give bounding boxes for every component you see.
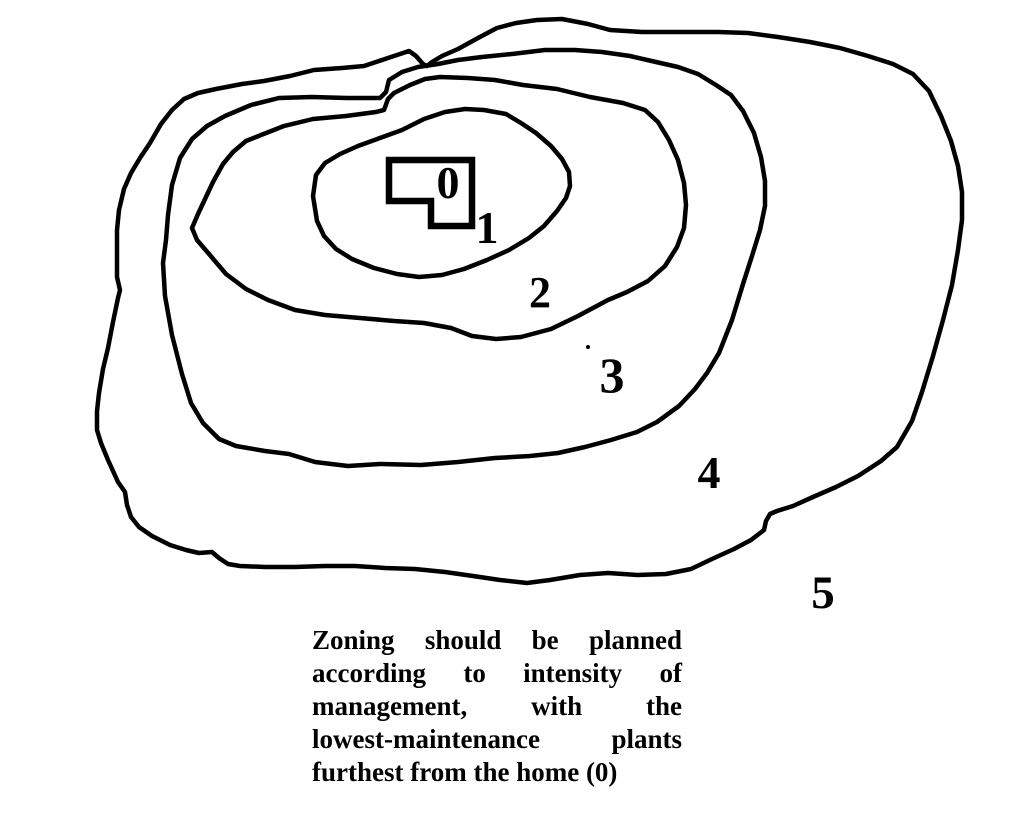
zone-label-1: 1 bbox=[476, 202, 499, 253]
zone-label-3: 3 bbox=[600, 347, 625, 403]
caption-line-3: management, with the bbox=[312, 690, 682, 723]
house-outline bbox=[389, 160, 472, 226]
zone-label-2: 2 bbox=[529, 268, 551, 317]
caption-line-2: according to intensity of bbox=[312, 657, 682, 690]
zone-label-5: 5 bbox=[811, 567, 835, 619]
caption-line-1: Zoning should be planned bbox=[312, 624, 682, 657]
caption: Zoning should be planned according to in… bbox=[312, 624, 682, 789]
caption-line-5: furthest from the home (0) bbox=[312, 756, 682, 789]
zone-label-0: 0 bbox=[437, 157, 460, 208]
zone-label-4: 4 bbox=[698, 447, 721, 498]
stray-mark-dot bbox=[586, 345, 590, 349]
contour-zone-3-4-boundary bbox=[163, 50, 765, 466]
caption-line-4: lowest-maintenance plants bbox=[312, 723, 682, 756]
zoning-diagram: 0 1 2 3 4 5 Zoning should be planned acc… bbox=[0, 0, 1019, 820]
